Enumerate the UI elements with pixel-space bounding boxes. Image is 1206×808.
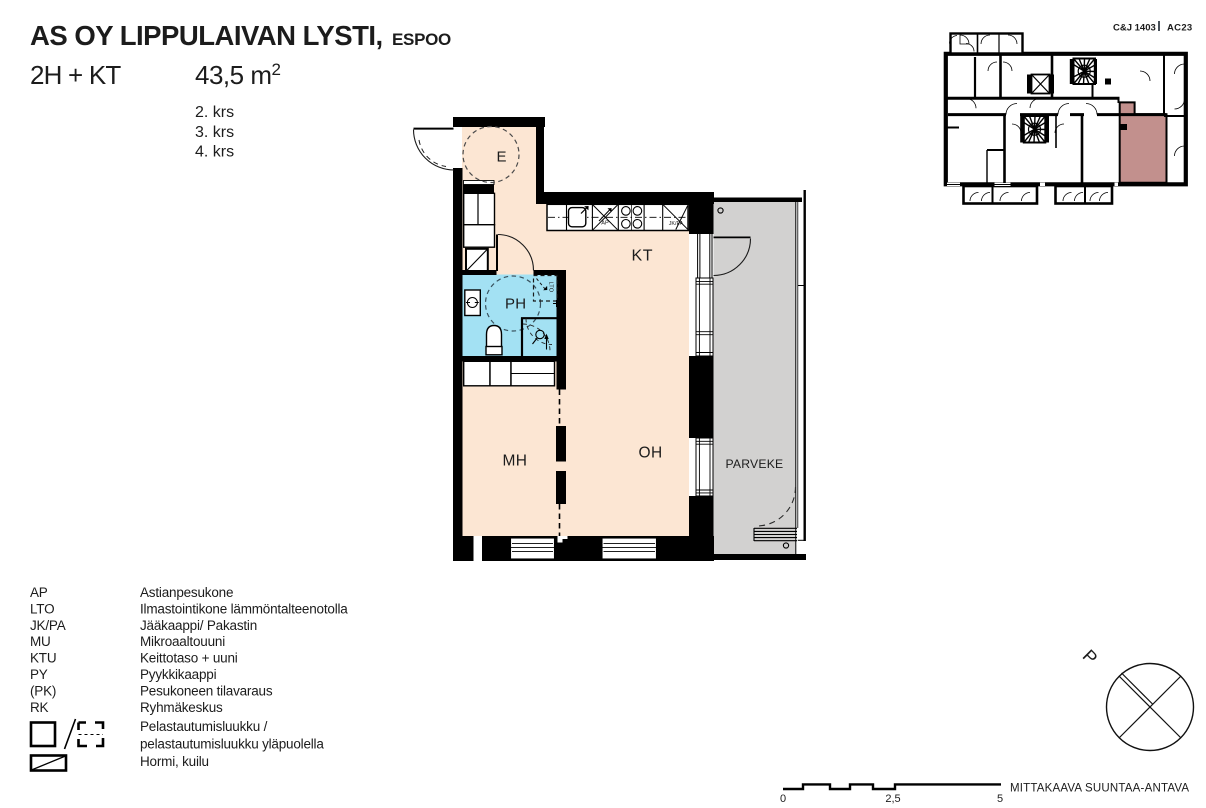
svg-text:PH: PH [505,296,526,313]
svg-text:JK/PA: JK/PA [30,618,66,633]
svg-text:Ryhmäkeskus: Ryhmäkeskus [140,700,223,715]
svg-text:Ilmastointikone lämmöntalteeno: Ilmastointikone lämmöntalteenotolla [140,601,348,616]
svg-text:3. krs: 3. krs [195,124,234,141]
svg-text:C&J 1403: C&J 1403 [1113,23,1156,34]
svg-text:2,5: 2,5 [885,793,900,805]
svg-text:43,5 m2: 43,5 m2 [195,60,281,90]
svg-text:AP: AP [601,221,609,227]
svg-text:P: P [1079,646,1102,669]
svg-text:MITTAKAAVA SUUNTAA-ANTAVA: MITTAKAAVA SUUNTAA-ANTAVA [1010,783,1189,795]
svg-text:AP: AP [30,585,48,600]
svg-text:Pyykkikaappi: Pyykkikaappi [140,667,217,682]
svg-text:KTU: KTU [30,651,56,666]
svg-text:PY: PY [30,667,48,682]
svg-text:(PK): (PK) [30,683,56,698]
svg-text:2H + KT: 2H + KT [30,60,121,90]
svg-text:2. krs: 2. krs [195,104,234,121]
svg-text:E: E [497,149,507,166]
svg-text:OH: OH [639,445,663,462]
svg-text:AS OY LIPPULAIVAN LYSTI,: AS OY LIPPULAIVAN LYSTI, [30,20,383,51]
svg-text:JK/PA: JK/PA [669,221,684,227]
svg-text:AC23: AC23 [1167,23,1193,34]
svg-text:0: 0 [780,793,786,805]
svg-text:Jääkaappi/ Pakastin: Jääkaappi/ Pakastin [140,618,257,633]
svg-text:5: 5 [997,793,1003,805]
svg-text:LTO: LTO [548,282,554,293]
svg-text:MU: MU [30,634,51,649]
svg-text:RK: RK [30,700,49,715]
svg-text:KT: KT [632,248,654,265]
svg-text:Mikroaaltouuni: Mikroaaltouuni [140,634,225,649]
svg-text:Astianpesukone: Astianpesukone [140,585,233,600]
svg-text:LTO: LTO [30,601,54,616]
svg-text:Pesukoneen tilavaraus: Pesukoneen tilavaraus [140,683,273,698]
svg-text:Hormi, kuilu: Hormi, kuilu [140,754,209,769]
svg-text:Pelastautumisluukku /: Pelastautumisluukku / [140,719,268,734]
svg-text:Keittotaso + uuni: Keittotaso + uuni [140,651,238,666]
svg-text:ESPOO: ESPOO [392,30,451,49]
svg-text:PARVEKE: PARVEKE [726,457,784,471]
svg-text:MH: MH [503,453,528,470]
svg-text:pelastautumisluukku yläpuolell: pelastautumisluukku yläpuolella [140,737,324,752]
svg-text:4. krs: 4. krs [195,144,234,161]
